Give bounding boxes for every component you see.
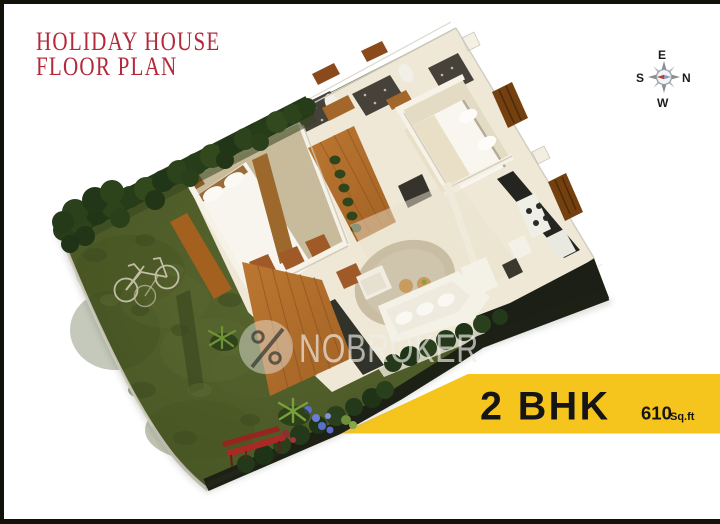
- svg-text:Sq.ft: Sq.ft: [670, 411, 695, 423]
- svg-text:610: 610: [641, 403, 672, 424]
- svg-text:W: W: [657, 96, 669, 110]
- svg-text:E: E: [658, 48, 666, 62]
- svg-text:NOBROKER: NOBROKER: [299, 326, 479, 371]
- svg-text:2 BHK: 2 BHK: [480, 385, 611, 429]
- svg-text:S: S: [636, 71, 644, 85]
- svg-text:N: N: [682, 71, 691, 85]
